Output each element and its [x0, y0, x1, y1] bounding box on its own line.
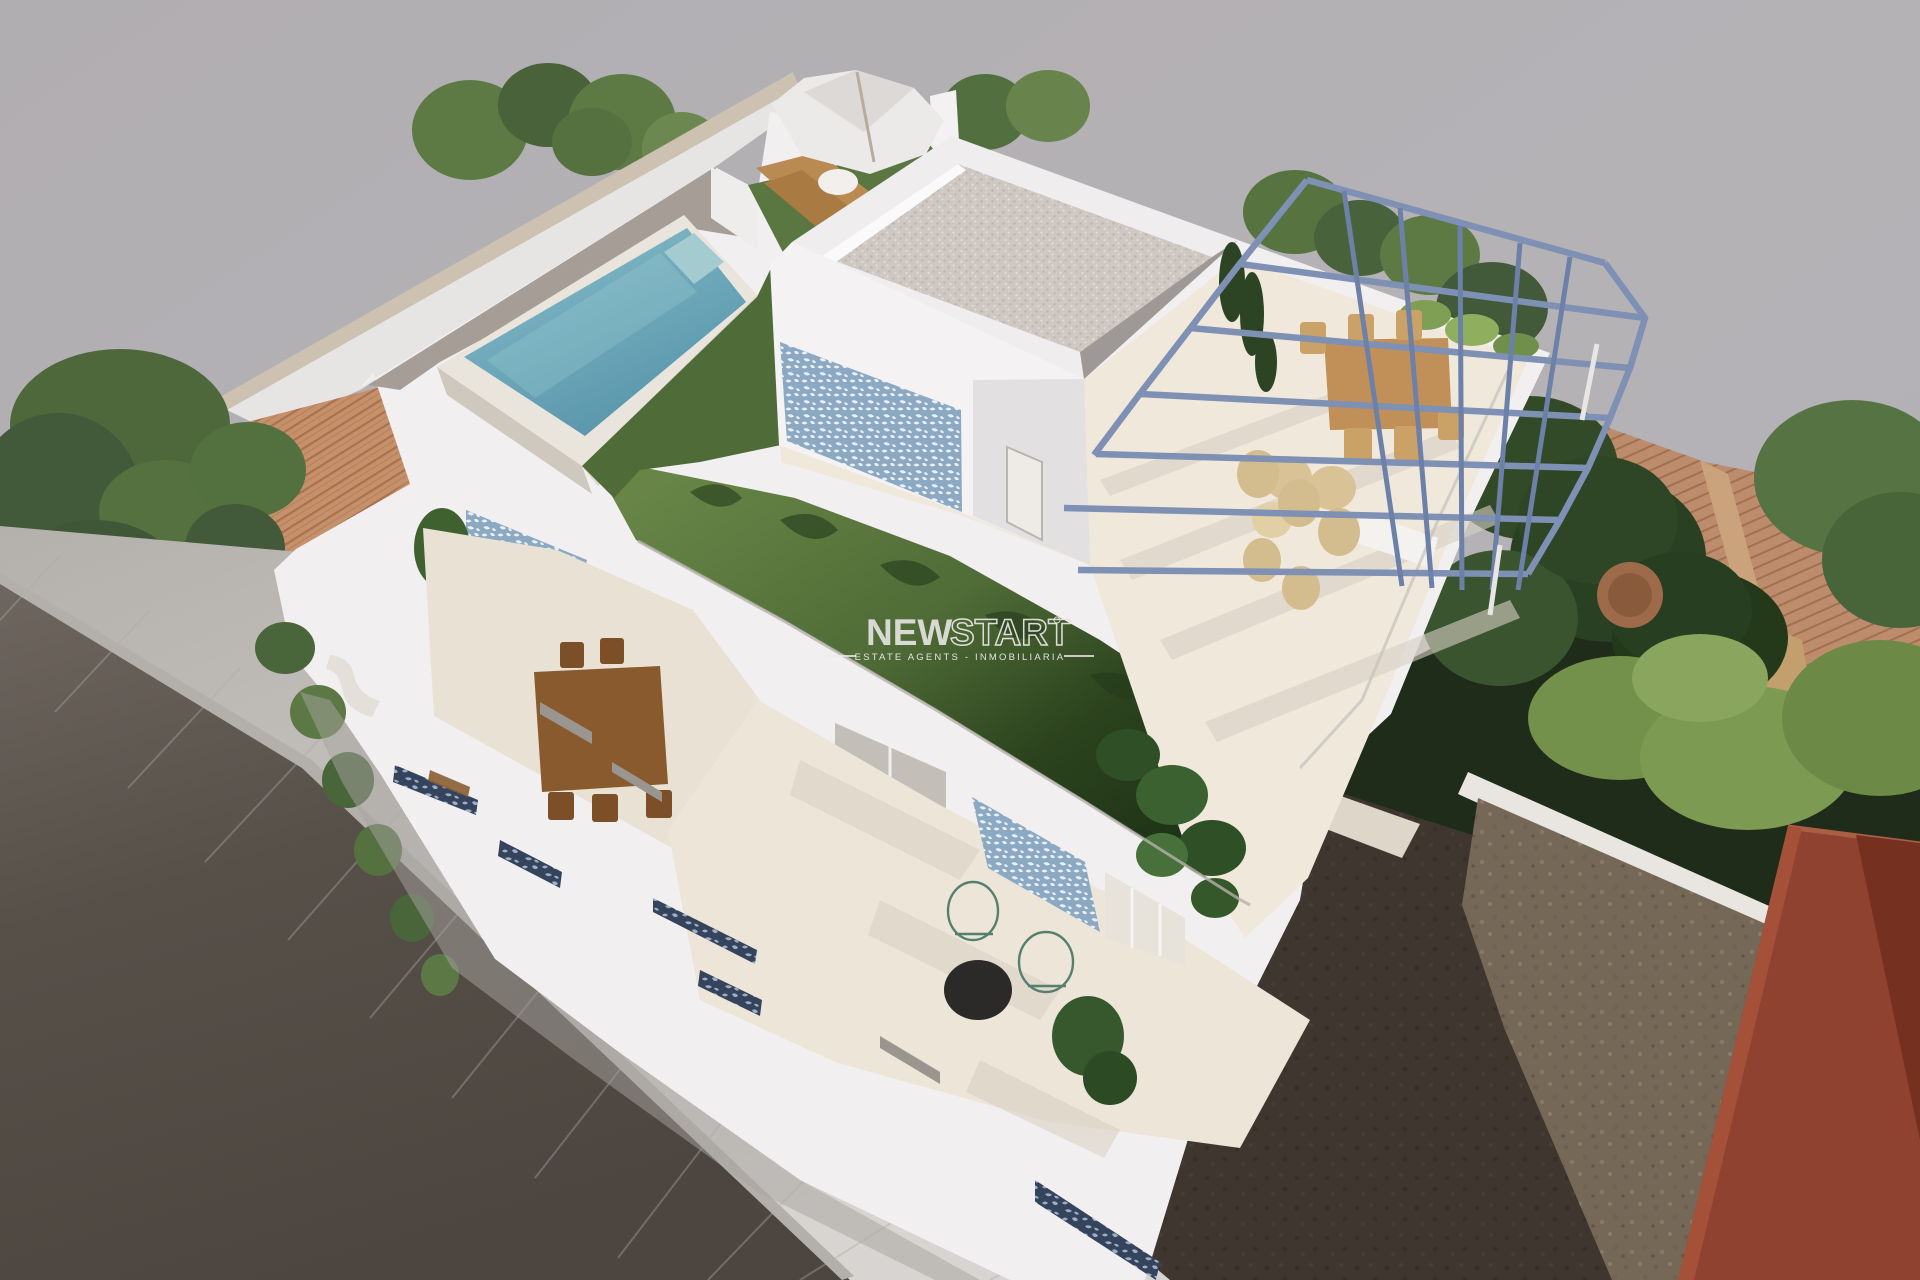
svg-text:ESTATE AGENTS - INMOBILIARIA: ESTATE AGENTS - INMOBILIARIA	[855, 652, 1066, 663]
svg-text:START: START	[950, 612, 1071, 653]
svg-text:NEW: NEW	[866, 612, 952, 653]
